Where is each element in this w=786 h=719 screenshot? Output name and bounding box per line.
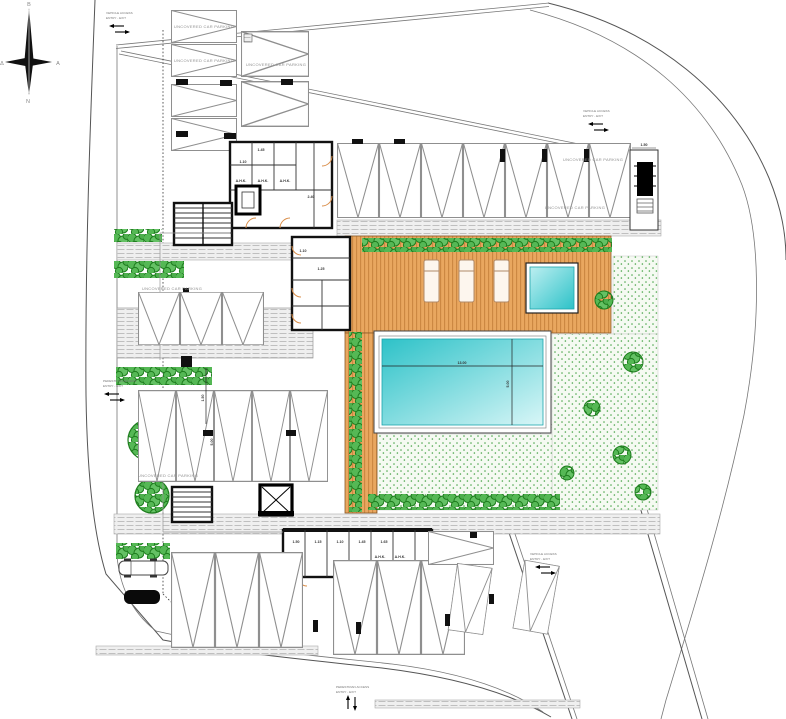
parking-bay: [214, 391, 251, 482]
compass-south-label: N: [26, 99, 30, 105]
room-label: A.H.K.: [375, 555, 386, 559]
walkway-bottom-path: [375, 700, 580, 708]
wheel-stop: [313, 620, 318, 632]
wheel-stop: [352, 139, 363, 144]
wheel-stop: [203, 430, 213, 436]
direction-arrow-icon: [346, 695, 350, 709]
compass-needle-ew: [5, 58, 52, 67]
parking-bay: [242, 82, 309, 127]
dimension-label: 1.50: [641, 143, 648, 147]
site-plan-drawing: 13.00 5.00 UNCOVERED CAR PARKING: [0, 0, 786, 719]
walkway-north: [337, 220, 661, 236]
parking-area-label: UNCOVERED CAR PARKING: [246, 62, 306, 67]
north-compass: B N A Δ: [0, 2, 60, 105]
svg-text:PEDESTRIAN ACCESS: PEDESTRIAN ACCESS: [336, 685, 369, 689]
room-label: A.H.K.: [395, 555, 406, 559]
hedge-row: [114, 261, 184, 278]
hedge-row-lawn-bottom: [368, 494, 560, 510]
dimension-label: 1.15: [315, 540, 322, 544]
parking-bay: [338, 144, 379, 218]
vehicle-access-label-ne: VEHICLE ACCESS ENTRY - EXIT: [583, 109, 610, 132]
parking-bay: [334, 561, 377, 655]
wheel-stop: [500, 149, 505, 162]
direction-arrow-icon: [588, 122, 603, 126]
parking-area-label: UNCOVERED CAR PARKING: [563, 157, 623, 162]
compass-east-label: A: [56, 61, 60, 67]
dimension-label: 1.45: [258, 148, 265, 152]
parking-bay: [139, 292, 180, 344]
svg-text:VEHICLE ACCESS: VEHICLE ACCESS: [106, 11, 133, 15]
parking-bay: [513, 560, 560, 634]
wheel-stop: [356, 622, 361, 634]
compass-west-label: Δ: [0, 61, 4, 67]
wheel-stop: [220, 80, 232, 86]
direction-arrow-icon: [109, 24, 124, 28]
wheel-stop: [224, 133, 236, 139]
car-outline: [119, 559, 168, 578]
parking-bay: [172, 85, 237, 117]
direction-arrow-icon: [594, 128, 609, 132]
wheel-stop: [281, 79, 293, 85]
svg-text:ENTRY - EXIT: ENTRY - EXIT: [106, 16, 126, 20]
direction-arrow-icon: [115, 30, 130, 34]
pool-water: [382, 339, 543, 425]
room-label: A.H.K.: [280, 179, 291, 183]
tree: [135, 479, 169, 513]
wheel-stop: [489, 594, 494, 604]
parking-area-label: UNCOVERED CAR PARKING: [142, 286, 202, 291]
site-plan-page: 13.00 5.00 UNCOVERED CAR PARKING: [0, 0, 786, 719]
shrub: [623, 352, 643, 372]
dimension-label: 1.50: [201, 395, 205, 402]
parking-bay: [464, 144, 505, 218]
room-label: A.H.K.: [236, 179, 247, 183]
shrub: [584, 400, 600, 416]
svg-text:ENTRY - EXIT: ENTRY - EXIT: [103, 384, 123, 388]
parking-bay: [422, 144, 463, 218]
parking-top-left: UNCOVERED CAR PARKING UNCOVERED CAR PARK…: [172, 11, 309, 151]
parking-bay: [506, 144, 547, 218]
utility-box: [181, 356, 192, 367]
utility-enclosure: 1.50: [630, 143, 658, 230]
sun-lounger: [494, 260, 509, 302]
parking-area-label: UNCOVERED CAR PARKING: [174, 24, 234, 29]
wheel-stop: [286, 430, 296, 436]
dimension-label: 1.50: [293, 540, 300, 544]
pool-length-label: 13.00: [458, 361, 467, 365]
svg-text:ENTRY - EXIT: ENTRY - EXIT: [583, 114, 603, 118]
vehicle-access-label-nw: VEHICLE ACCESS ENTRY - EXIT: [106, 11, 133, 34]
parking-area-label: UNCOVERED CAR PARKING: [545, 205, 605, 210]
direction-arrow-icon: [110, 398, 125, 402]
wheel-stop: [445, 614, 450, 626]
lawn-1: [613, 256, 658, 334]
elevator-south: [258, 485, 294, 516]
shrub: [613, 446, 631, 464]
parking-area-label: UNCOVERED CAR PARKING: [174, 58, 234, 63]
sun-lounger: [424, 260, 439, 302]
dimension-label: 1.10: [300, 249, 307, 253]
wheel-stop: [176, 131, 188, 137]
svg-text:VEHICLE ACCESS: VEHICLE ACCESS: [583, 109, 610, 113]
swimming-pool: 13.00 5.00: [374, 331, 551, 433]
hedge-row: [116, 543, 170, 559]
wheel-stop: [542, 149, 547, 162]
bay-hatch-marker: [244, 34, 252, 42]
sun-lounger: [459, 260, 474, 302]
svg-text:ENTRY - EXIT: ENTRY - EXIT: [336, 690, 356, 694]
wheel-stop: [176, 79, 188, 85]
parking-bay: [380, 144, 421, 218]
dimension-label: 1.45: [359, 540, 366, 544]
parking-bay: [223, 292, 264, 344]
dimension-label: 1.10: [337, 540, 344, 544]
pedestrian-access-label-w: PEDESTRIAN ACCESS ENTRY - EXIT: [103, 379, 136, 402]
staircase-south: [172, 487, 212, 522]
parking-bay: [138, 391, 175, 482]
wheel-stop: [470, 532, 477, 538]
hedge-col-deck-left: [349, 332, 362, 512]
elevator-north: [236, 186, 260, 214]
vehicles: [119, 559, 168, 605]
parking-bay: [181, 292, 222, 344]
compass-north-label: B: [27, 2, 31, 8]
pedestrian-access-label-s: PEDESTRIAN ACCESS ENTRY - EXIT: [336, 685, 369, 711]
parking-bay: [172, 553, 215, 648]
enclosure-striped-unit: [637, 199, 653, 213]
dimension-label: 1.25: [318, 267, 325, 271]
parking-top-row: UNCOVERED CAR PARKING UNCOVERED CAR PARK…: [338, 139, 631, 218]
parking-bay: [378, 561, 421, 655]
dimension-label: 2.40: [308, 195, 315, 199]
parking-bay: [429, 532, 494, 565]
car-silhouette: [124, 590, 160, 604]
dimension-label: 1.65: [381, 540, 388, 544]
wheel-stop: [394, 139, 405, 144]
jacuzzi: [526, 263, 578, 313]
parking-area-label: UNCOVERED CAR PARKING: [138, 473, 198, 478]
dimension-label: 5.00: [210, 439, 214, 446]
parking-bay: [290, 391, 327, 482]
shrub: [560, 466, 574, 480]
svg-text:VEHICLE ACCESS: VEHICLE ACCESS: [530, 552, 557, 556]
staircase-north: [174, 203, 232, 245]
enclosure-dark-unit: [637, 162, 653, 196]
shrub: [635, 484, 651, 500]
parking-bay: [216, 553, 259, 648]
direction-arrow-icon: [353, 697, 357, 711]
shrub: [595, 291, 613, 309]
svg-text:PEDESTRIAN ACCESS: PEDESTRIAN ACCESS: [103, 379, 136, 383]
hedge-row-deck-top: [362, 238, 612, 252]
room-label: A.H.K.: [258, 179, 269, 183]
pool-width-label: 5.00: [506, 381, 510, 388]
parking-bay: [260, 553, 303, 648]
dimension-label: 1.10: [240, 160, 247, 164]
svg-text:ENTRY - EXIT: ENTRY - EXIT: [530, 557, 550, 561]
parking-bay: [252, 391, 289, 482]
hedge-row: [114, 229, 162, 242]
